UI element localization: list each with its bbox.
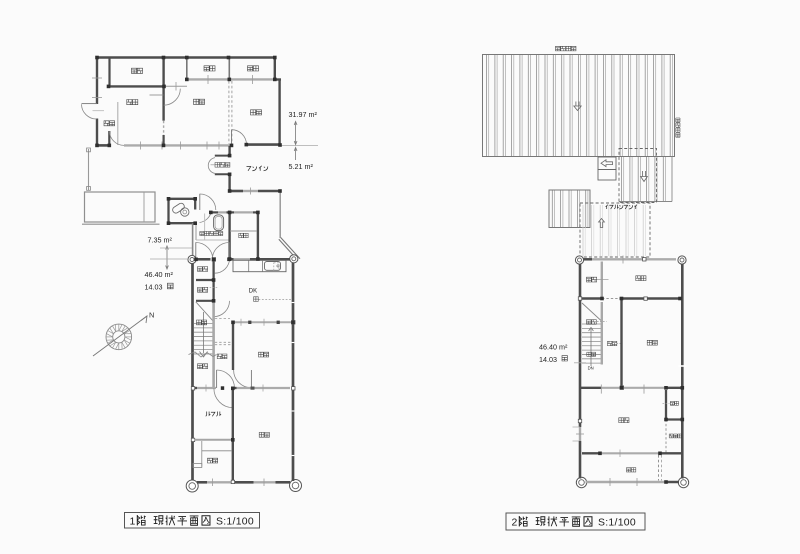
- svg-text:S:1/100: S:1/100: [598, 517, 636, 528]
- svg-text:7.35 m²: 7.35 m²: [148, 236, 173, 245]
- svg-text:14.03: 14.03: [539, 355, 557, 364]
- svg-text:31.97 m²: 31.97 m²: [289, 110, 318, 119]
- svg-text:S:1/100: S:1/100: [216, 516, 254, 527]
- svg-text:DK: DK: [249, 289, 257, 295]
- svg-text:N: N: [149, 311, 154, 320]
- svg-text:14.03: 14.03: [145, 283, 163, 292]
- svg-text:46.40 m²: 46.40 m²: [539, 342, 568, 351]
- svg-text:2: 2: [512, 517, 518, 528]
- svg-text:46.40 m²: 46.40 m²: [145, 270, 174, 279]
- svg-text:5.21 m²: 5.21 m²: [289, 162, 314, 171]
- svg-text:DN: DN: [588, 365, 594, 370]
- svg-text:1: 1: [130, 516, 136, 527]
